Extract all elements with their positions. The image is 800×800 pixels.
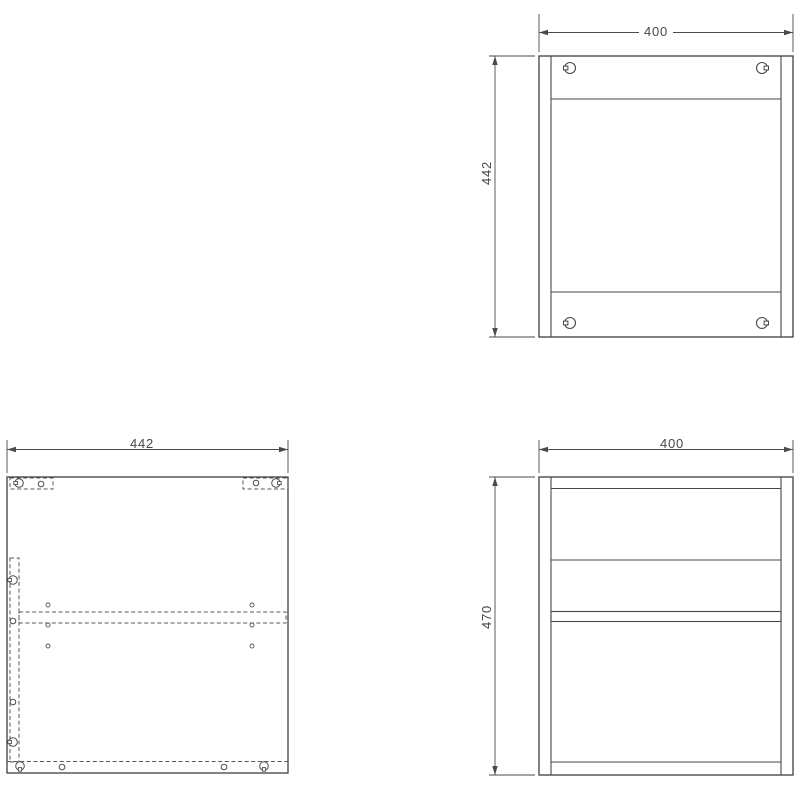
dim-arrow-right xyxy=(279,447,288,452)
cam-lock-icon xyxy=(16,762,25,772)
cam-lock-icon xyxy=(757,318,769,329)
dim-label-width: 442 xyxy=(130,436,154,451)
pilot-hole-icon xyxy=(250,603,254,607)
cam-lock-icon xyxy=(8,576,17,585)
middle-rail xyxy=(551,612,781,622)
cam-lock-icon xyxy=(564,318,576,329)
dim-arrow-left xyxy=(7,447,16,452)
technical-drawing-svg: 400 442 442 xyxy=(0,0,800,800)
front-view: 400 470 xyxy=(479,436,793,775)
cam-lock-icon xyxy=(260,762,269,772)
cam-lock-icon xyxy=(564,63,576,74)
cam-lock-icon xyxy=(757,63,769,74)
drill-hole-icon xyxy=(221,764,227,770)
pilot-hole-icon xyxy=(46,623,50,627)
top-view-outline xyxy=(539,56,793,337)
dim-arrow-left xyxy=(539,30,548,35)
dim-arrow-up xyxy=(492,56,497,65)
hidden-middle-rail xyxy=(19,612,286,623)
front-view-outline xyxy=(539,477,793,775)
top-view: 400 442 xyxy=(479,14,793,337)
drill-hole-icon xyxy=(10,699,16,705)
dim-label-depth: 442 xyxy=(479,161,494,185)
cam-lock-icon xyxy=(272,479,282,488)
dim-arrow-down xyxy=(492,766,497,775)
dim-arrow-right xyxy=(784,447,793,452)
drill-hole-icon xyxy=(10,618,16,624)
dim-label-width: 400 xyxy=(660,436,684,451)
cam-lock-icon xyxy=(8,738,17,747)
pilot-hole-icon xyxy=(250,623,254,627)
dim-arrow-right xyxy=(784,30,793,35)
dim-arrow-down xyxy=(492,328,497,337)
drawing-canvas: 400 442 442 xyxy=(0,0,800,800)
dim-label-height: 470 xyxy=(479,605,494,629)
dim-arrow-up xyxy=(492,477,497,486)
side-panel-outline xyxy=(7,477,288,773)
drill-hole-icon xyxy=(253,480,259,486)
pilot-hole-icon xyxy=(250,644,254,648)
dim-label-width: 400 xyxy=(644,24,668,39)
hidden-back-panel-groove xyxy=(10,558,19,762)
drill-hole-icon xyxy=(59,764,65,770)
pilot-hole-icon xyxy=(46,603,50,607)
dim-arrow-left xyxy=(539,447,548,452)
cam-lock-icon xyxy=(14,479,23,488)
side-panel-view: 442 xyxy=(7,436,288,773)
pilot-hole-icon xyxy=(46,644,50,648)
drill-hole-icon xyxy=(38,481,44,487)
